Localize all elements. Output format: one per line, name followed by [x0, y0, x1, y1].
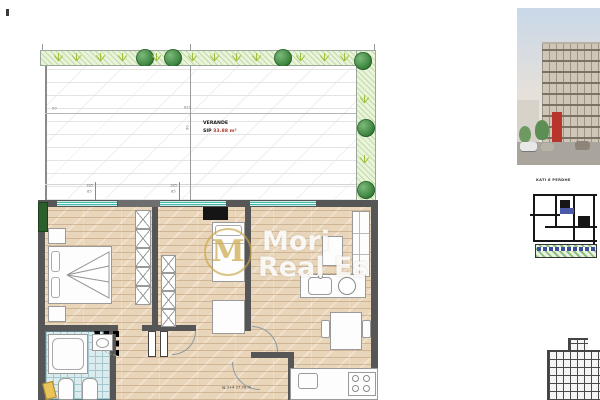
bathroom-sink — [92, 334, 113, 351]
bush-icon — [164, 49, 182, 67]
dim-tick — [179, 182, 180, 200]
keyplan-block — [560, 200, 570, 208]
keyplan-wall — [573, 194, 575, 242]
grass-icon — [192, 53, 193, 61]
veranda-divider — [190, 66, 191, 200]
dim-tick — [95, 182, 96, 200]
bush-icon — [354, 52, 372, 70]
bush-icon — [357, 119, 375, 137]
wardrobe-cell — [135, 267, 151, 286]
bidet — [82, 378, 98, 400]
wardrobe-cell — [135, 248, 151, 267]
bed — [48, 246, 112, 304]
room-area-note: lg.3+4 27.76 m — [222, 386, 251, 390]
window-dim: 185 — [170, 184, 177, 188]
elevation-drawing — [545, 338, 600, 400]
wardrobe-cell — [161, 309, 176, 327]
grass-icon — [344, 53, 345, 61]
bush-icon — [274, 49, 292, 67]
tree — [535, 120, 549, 140]
ac-unit — [203, 207, 228, 220]
keyplan-block — [578, 216, 590, 226]
interior-wall — [251, 352, 293, 358]
sink-bowl — [96, 338, 109, 348]
grass-icon — [364, 155, 365, 163]
wardrobe-cell — [135, 286, 151, 305]
door-leaf — [160, 331, 168, 357]
burner-icon — [363, 385, 370, 392]
veranda-area-unit: m² — [230, 128, 237, 133]
toilet — [58, 378, 74, 400]
main-building — [542, 42, 600, 150]
grass-icon — [364, 95, 365, 103]
grass-icon — [122, 53, 123, 61]
planter — [38, 202, 48, 232]
grass-icon — [58, 53, 59, 61]
dining-table — [330, 312, 362, 350]
window-dim: 85 — [87, 190, 92, 194]
floor-caption: KATI 6 PERDHE — [536, 178, 571, 182]
bush-icon — [357, 181, 375, 199]
wardrobe-cell — [135, 210, 151, 229]
car — [541, 143, 554, 151]
interior-wall — [152, 207, 158, 325]
car — [520, 142, 537, 151]
bathtub — [48, 334, 88, 374]
grass-icon — [236, 53, 237, 61]
nightstand — [48, 306, 66, 322]
burner-icon — [363, 375, 370, 382]
keyplan-blue-cells — [537, 247, 595, 251]
window-dim: 185 — [86, 184, 93, 188]
car — [575, 141, 590, 150]
page-corner-mark — [6, 9, 9, 16]
grass-icon — [300, 53, 301, 61]
wardrobe-cell — [161, 291, 176, 309]
keyplan-wall — [545, 226, 597, 228]
key-plan-drawing — [527, 188, 600, 265]
blanket-fan-icon — [65, 248, 111, 302]
chair — [362, 320, 371, 338]
wardrobe-cell — [135, 229, 151, 248]
grass-icon — [100, 53, 101, 61]
floorplan-page: 50 621 90 VERANDE SIP 33.88 m² 185 85 18… — [0, 0, 600, 400]
red-storefront — [552, 112, 562, 144]
dim-label: 90 — [186, 125, 190, 130]
grass-icon — [324, 53, 325, 61]
window-dim: 85 — [171, 190, 176, 194]
watermark-text-line2: Real Es — [258, 254, 369, 281]
grass-icon — [76, 53, 77, 61]
building-render-image — [517, 8, 600, 165]
pillow — [51, 277, 60, 298]
veranda-area-value: 33.88 — [213, 128, 228, 133]
tree — [519, 126, 531, 143]
veranda-area-label: SIP — [203, 128, 212, 133]
dim-label: 50 — [52, 107, 57, 111]
elevation-facade — [547, 350, 600, 400]
wardrobe-cell — [161, 273, 176, 291]
watermark-text-line1: Mori — [262, 228, 330, 255]
keyplan-wall — [533, 194, 597, 196]
keyplan-wall — [555, 194, 557, 228]
window — [160, 201, 226, 206]
pillow — [51, 251, 60, 272]
grass-icon — [156, 53, 157, 61]
watermark-monogram: M — [211, 237, 244, 267]
watermark-logo: M — [204, 228, 252, 276]
grass-icon — [214, 53, 215, 61]
window — [57, 201, 117, 206]
counter-sink — [298, 373, 318, 389]
nightstand — [48, 228, 66, 244]
chair — [321, 320, 330, 338]
keyplan-wall — [533, 194, 535, 242]
wall-pier — [118, 200, 160, 207]
grass-icon — [256, 53, 257, 61]
veranda-floor — [45, 66, 356, 200]
veranda-title: VERANDE — [203, 121, 228, 126]
keyplan-wall — [530, 214, 560, 216]
keyplan-blue-unit — [560, 208, 574, 214]
burner-icon — [352, 385, 359, 392]
window — [250, 201, 316, 206]
veranda-area: SIP 33.88 m² — [203, 129, 237, 134]
dresser — [212, 300, 245, 334]
veranda-dim-line — [45, 113, 356, 114]
sofa-cushion-line — [353, 233, 369, 234]
bush-icon — [136, 49, 154, 67]
wardrobe-cell — [161, 255, 176, 273]
dim-label: 621 — [184, 106, 191, 110]
keyplan-wall — [533, 240, 597, 242]
door-leaf — [148, 331, 156, 357]
bathtub-inner — [52, 338, 84, 370]
burner-icon — [352, 375, 359, 382]
